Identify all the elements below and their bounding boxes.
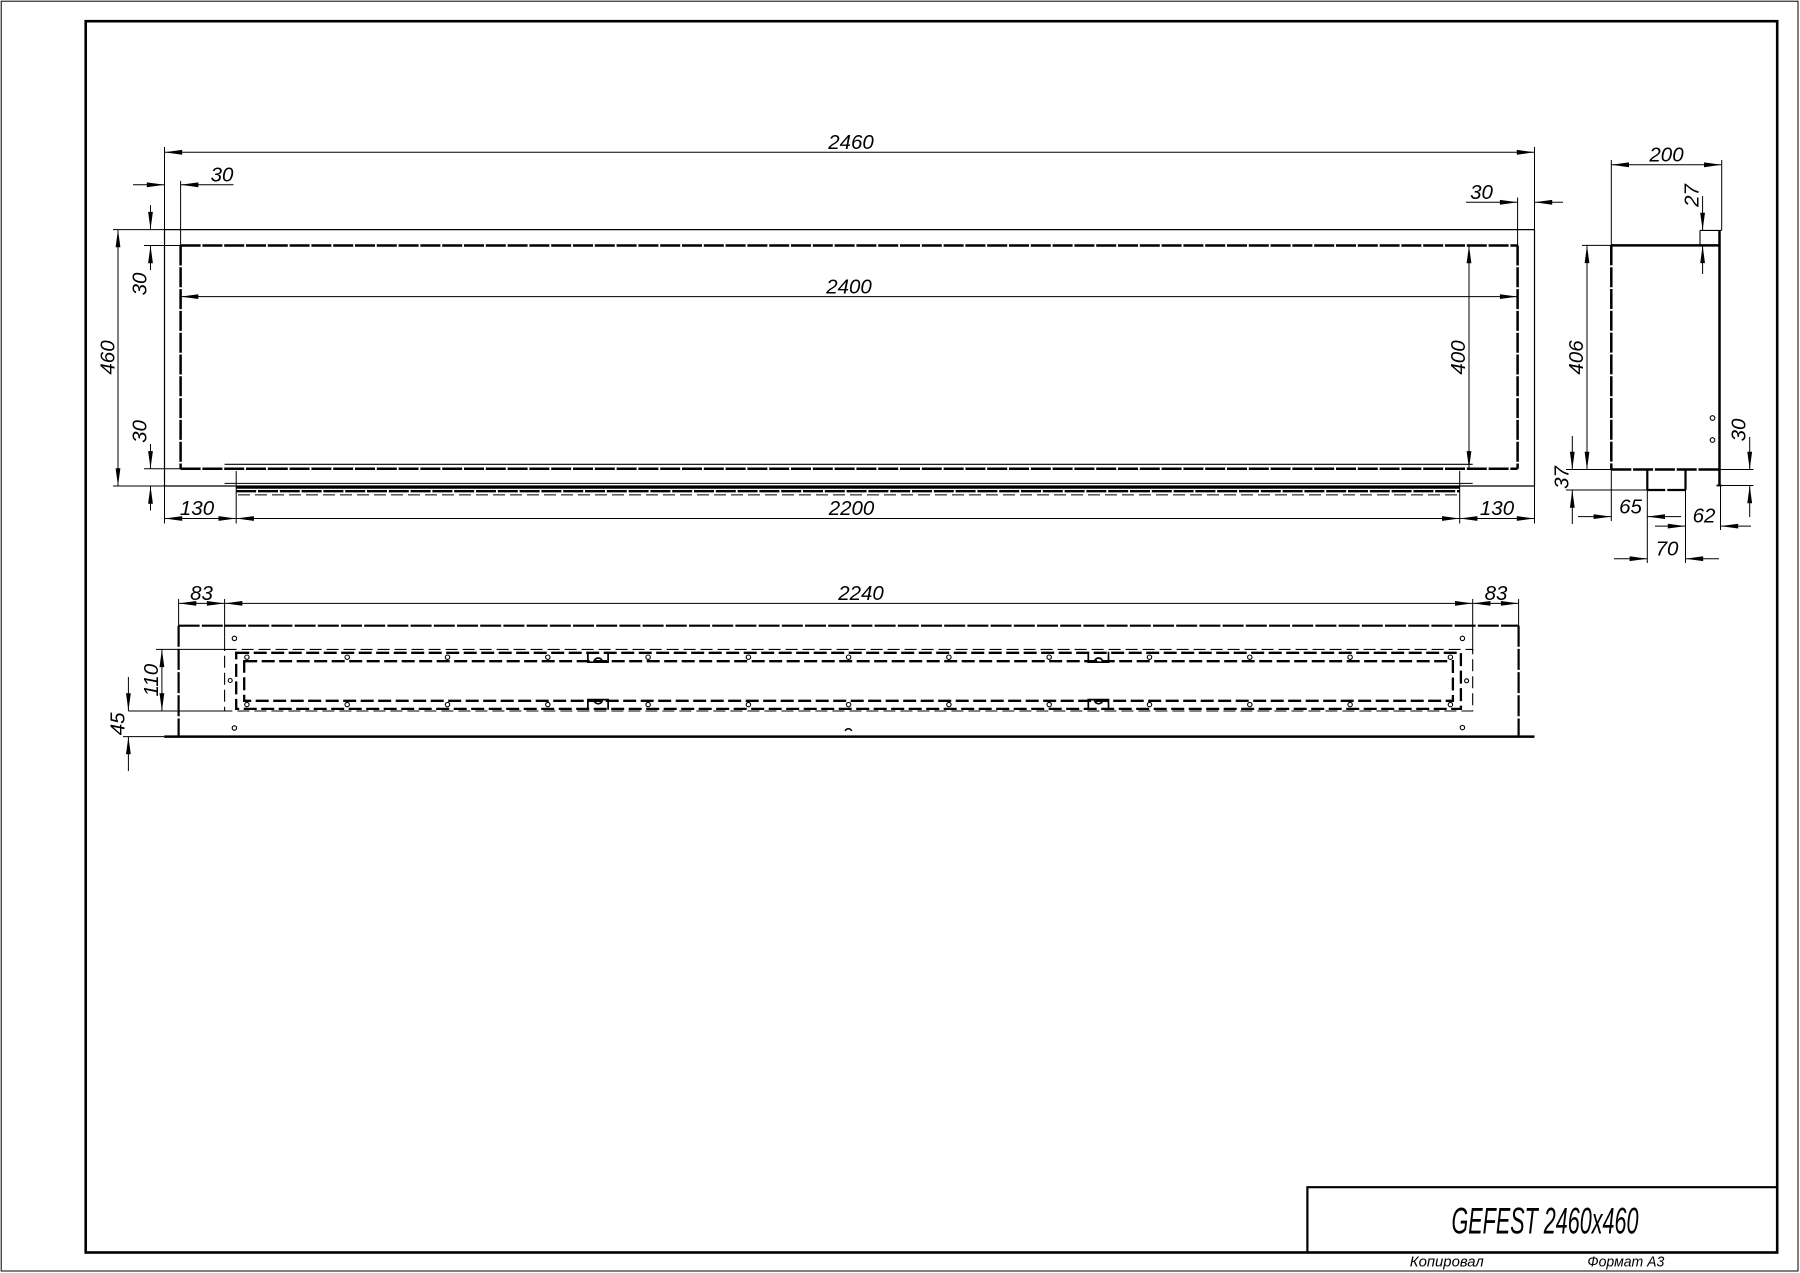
- svg-text:83: 83: [1485, 582, 1508, 605]
- svg-text:406: 406: [1565, 340, 1588, 375]
- svg-text:30: 30: [129, 420, 152, 443]
- svg-text:65: 65: [1619, 495, 1642, 518]
- svg-text:130: 130: [1480, 497, 1515, 520]
- svg-text:110: 110: [140, 663, 163, 696]
- svg-text:GEFEST 2460x460: GEFEST 2460x460: [1452, 1200, 1639, 1242]
- svg-text:37: 37: [1550, 465, 1573, 489]
- svg-text:70: 70: [1656, 537, 1679, 560]
- svg-text:83: 83: [190, 582, 213, 605]
- svg-text:130: 130: [180, 497, 215, 520]
- svg-text:2460: 2460: [827, 131, 874, 154]
- svg-text:27: 27: [1681, 183, 1704, 208]
- svg-text:2200: 2200: [828, 497, 875, 520]
- svg-text:30: 30: [129, 272, 152, 295]
- svg-text:30: 30: [1728, 418, 1751, 441]
- svg-text:2240: 2240: [837, 582, 884, 605]
- svg-text:200: 200: [1648, 144, 1684, 167]
- svg-text:460: 460: [97, 340, 120, 375]
- svg-text:30: 30: [1470, 181, 1493, 204]
- svg-text:30: 30: [211, 163, 234, 186]
- svg-text:Копировал: Копировал: [1410, 1255, 1484, 1271]
- svg-text:62: 62: [1693, 505, 1716, 528]
- svg-text:2400: 2400: [825, 275, 872, 298]
- svg-text:45: 45: [106, 712, 129, 735]
- svg-text:Формат А3: Формат А3: [1587, 1255, 1664, 1271]
- svg-text:400: 400: [1447, 340, 1470, 375]
